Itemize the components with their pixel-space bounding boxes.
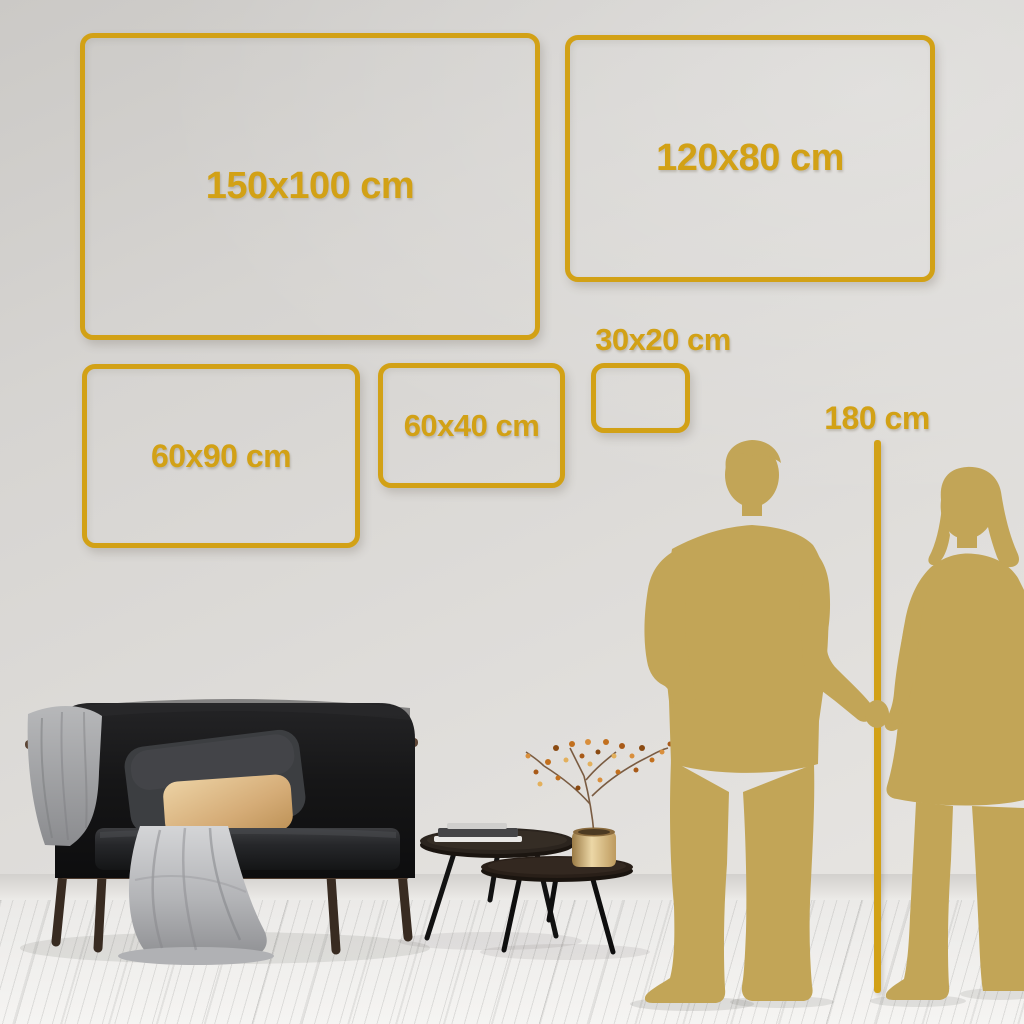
woman-silhouette xyxy=(865,467,1024,1000)
man-silhouette xyxy=(644,440,874,1003)
sofa xyxy=(25,699,418,965)
size-guide-scene: 150x100 cm 120x80 cm 30x20 cm 60x40 cm 6… xyxy=(0,0,1024,1024)
scene-illustration xyxy=(0,0,1024,1024)
book-stack xyxy=(434,823,522,842)
brass-vase xyxy=(572,828,616,868)
dried-branch-plant xyxy=(526,739,673,834)
